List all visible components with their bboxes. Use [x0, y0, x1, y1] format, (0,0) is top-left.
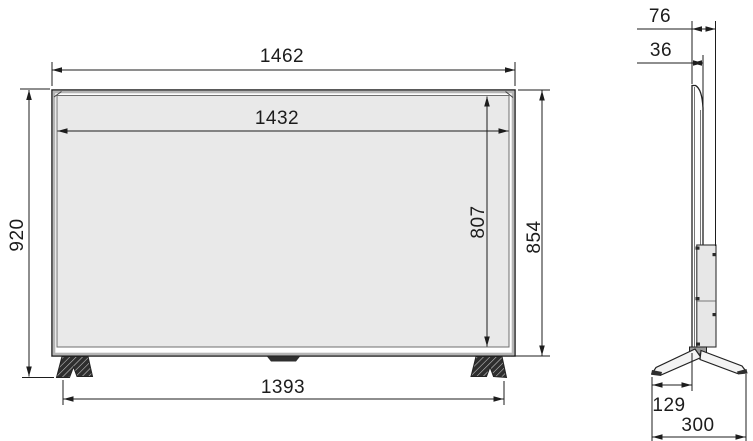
bulge-clip-3: [696, 343, 700, 346]
tv-left-foot: [57, 357, 93, 378]
front-view: [52, 90, 515, 378]
bulge-clip-4: [713, 253, 716, 256]
bulge-clip-2: [696, 297, 700, 300]
stand-back-leg: [700, 351, 747, 374]
tv-right-foot: [471, 357, 507, 378]
side-rear-bulge: [697, 245, 716, 347]
label-screen-width: 1432: [255, 108, 299, 129]
dim-overall-depth: [637, 21, 716, 246]
label-screen-height: 807: [468, 205, 489, 238]
label-overall-depth: 76: [649, 6, 671, 27]
bottom-center-tab: [267, 357, 300, 362]
label-panel-height: 854: [524, 220, 545, 253]
side-view: [651, 86, 748, 377]
label-overall-width: 1462: [260, 46, 304, 67]
label-overall-height: 920: [7, 218, 28, 251]
stand-front-leg: [652, 349, 701, 375]
bulge-clip-5: [713, 313, 716, 316]
tv-screen: [57, 96, 509, 348]
tv-dimension-drawing: 1462 1432 920 854 807 1393 76 36 129 300: [0, 0, 753, 441]
label-stand-span: 1393: [261, 377, 305, 398]
bulge-clip-1: [696, 247, 700, 250]
label-stand-depth: 300: [681, 415, 714, 436]
label-panel-depth: 36: [650, 40, 672, 61]
label-foot-offset: 129: [652, 395, 685, 416]
drawing-canvas: 1462 1432 920 854 807 1393 76 36 129 300: [0, 0, 753, 441]
